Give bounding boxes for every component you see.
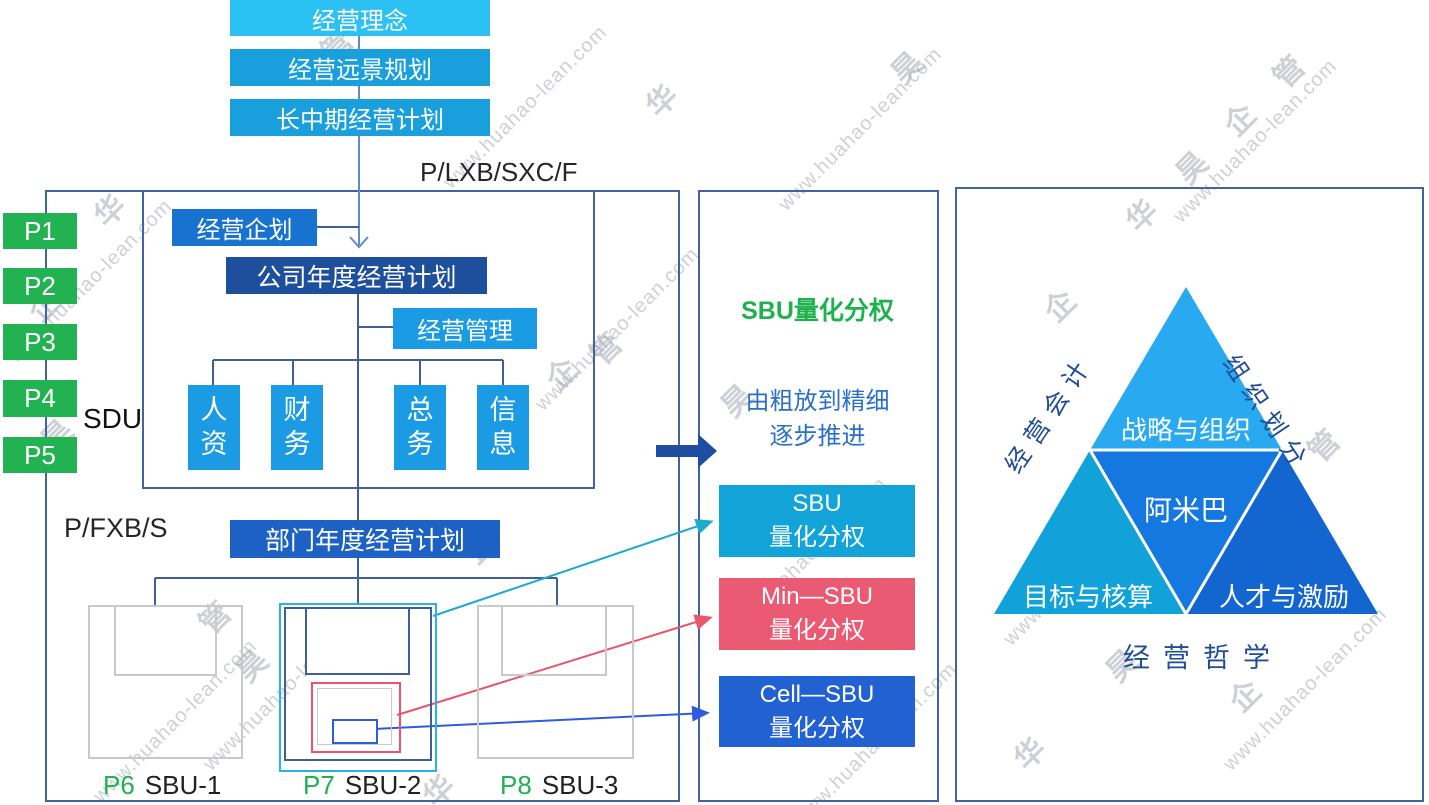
sbu2-name: SBU-2 [345,770,422,801]
sbu3-code: P8 [500,770,532,801]
level-box-cell-sbu-line1: Cell—SBU [760,678,875,712]
box-business-philosophy: 经营理念 [230,0,490,36]
box-dept-hr: 人资 [188,385,240,470]
sbu2-code: P7 [303,770,335,801]
middle-panel-title: SBU量化分权 [700,291,935,327]
triangle-bottom-axis-label: 经营哲学 [1123,636,1283,675]
level-box-sbu: SBU 量化分权 [719,485,915,557]
box-business-planning-dept: 经营企划 [172,209,317,246]
box-dept-finance-label: 财务 [284,394,311,462]
p-unit-4: P4 [3,380,77,417]
sbu2-label: P7 SBU-2 [303,770,421,801]
code-label-dept: P/FXB/S [64,513,168,544]
p-unit-2-label: P2 [24,271,56,302]
p-unit-5-label: P5 [24,440,56,471]
p-unit-3-label: P3 [24,327,56,358]
sdu-label: SDU [83,403,142,435]
box-dept-hr-label: 人资 [201,394,228,462]
box-business-management: 经营管理 [393,308,537,349]
sbu1-inner-frame [114,605,217,676]
box-dept-finance: 财务 [271,385,323,470]
box-dept-general-affairs-label: 总务 [407,394,434,462]
box-department-annual-plan-label: 部门年度经营计划 [265,521,465,557]
p-unit-4-label: P4 [24,383,56,414]
box-company-annual-plan: 公司年度经营计划 [226,257,487,294]
sbu3-label: P8 SBU-3 [500,770,618,801]
p-unit-2: P2 [3,268,77,304]
box-company-annual-plan-label: 公司年度经营计划 [256,258,456,294]
sbu3-name: SBU-3 [542,770,619,801]
diagram-canvas: www.huahao-lean.comwww.huahao-lean.comww… [0,0,1429,805]
level-box-cell-sbu: Cell—SBU 量化分权 [719,676,915,747]
box-department-annual-plan: 部门年度经营计划 [230,520,500,558]
triangle-bottom-right-label: 人才与激励 [1184,577,1384,614]
box-dept-it-label: 信息 [490,394,517,462]
middle-panel-subtitle-2: 逐步推进 [700,416,935,451]
p-unit-3: P3 [3,324,77,360]
box-vision-plan: 经营远景规划 [230,49,490,86]
p-unit-1: P1 [3,213,77,249]
box-longterm-plan: 长中期经营计划 [230,99,490,136]
sbu1-label: P6 SBU-1 [103,770,221,801]
box-dept-general-affairs: 总务 [394,385,446,470]
box-business-philosophy-label: 经营理念 [312,1,408,36]
level-box-cell-sbu-line2: 量化分权 [769,712,865,746]
sbu3-inner-frame [501,605,607,676]
level-box-min-sbu: Min—SBU 量化分权 [719,578,915,650]
middle-panel-subtitle-1: 由粗放到精细 [700,381,935,416]
sbu2-cell-frame [332,719,378,744]
box-business-management-label: 经营管理 [417,311,513,346]
sbu1-name: SBU-1 [145,770,222,801]
box-vision-plan-label: 经营远景规划 [288,50,432,85]
p-unit-5: P5 [3,437,77,473]
box-dept-it: 信息 [477,385,529,470]
sbu2-top-unit-frame [305,607,410,675]
box-business-planning-label: 经营企划 [197,210,293,245]
sbu1-code: P6 [103,770,135,801]
triangle-bottom-left-label: 目标与核算 [988,577,1188,614]
p-unit-1-label: P1 [24,216,56,247]
level-box-sbu-line1: SBU [792,487,841,521]
code-label-top: P/LXB/SXC/F [420,157,578,188]
triangle-center-label: 阿米巴 [1106,489,1266,529]
amoeba-triangle [994,287,1378,614]
level-box-sbu-line2: 量化分权 [769,521,865,555]
level-box-min-sbu-line2: 量化分权 [769,614,865,648]
box-longterm-plan-label: 长中期经营计划 [276,100,444,135]
level-box-min-sbu-line1: Min—SBU [761,580,873,614]
